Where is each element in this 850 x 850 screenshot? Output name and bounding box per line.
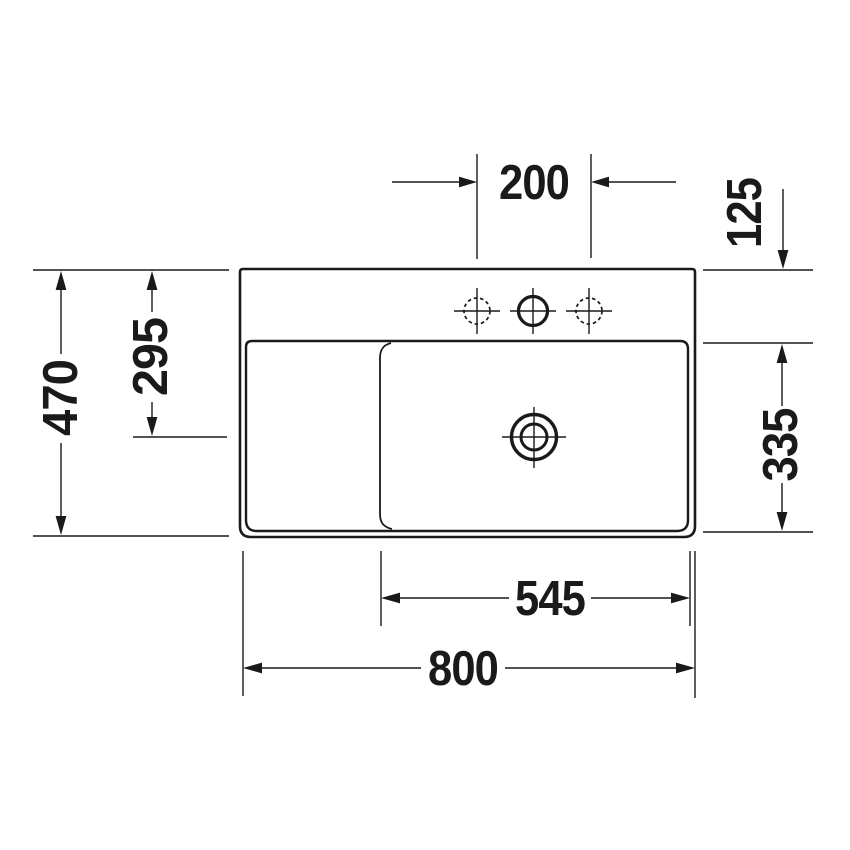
dimension-overall-width: 800 — [243, 551, 695, 698]
arrowhead-left — [381, 593, 400, 604]
arrowhead-up — [56, 271, 67, 290]
arrowhead-left — [591, 177, 609, 188]
arrowhead-right — [671, 593, 690, 604]
dimension-label-125: 125 — [718, 178, 772, 248]
dimension-faucet-setback: 125 — [703, 178, 813, 270]
arrowhead-right — [676, 663, 695, 674]
arrowhead-up — [147, 271, 158, 290]
dimension-basin-depth: 335 — [703, 343, 813, 532]
basin-rim-outline — [246, 341, 688, 531]
dimension-overall-depth: 470 — [33, 270, 229, 536]
arrowhead-down — [777, 512, 788, 531]
faucet-holes — [454, 288, 612, 334]
dimension-drain-setback: 295 — [124, 271, 227, 437]
dimension-label-335: 335 — [754, 409, 808, 482]
faucet-hole-right — [566, 288, 612, 334]
arrowhead-down — [778, 250, 789, 269]
dimension-label-800: 800 — [428, 642, 498, 696]
dimension-faucet-spacing: 200 — [392, 154, 676, 259]
faucet-hole-left — [454, 288, 500, 334]
arrowhead-right — [459, 177, 477, 188]
arrowhead-up — [777, 344, 788, 363]
basin-divider-curve — [380, 343, 392, 529]
drawing-canvas: 200 125 470 295 — [0, 0, 850, 850]
dimension-basin-width: 545 — [381, 551, 690, 626]
arrowhead-left — [243, 663, 262, 674]
sink-body — [240, 269, 695, 537]
sink-outer-outline — [240, 269, 695, 537]
dimension-label-545: 545 — [515, 572, 585, 626]
arrowhead-down — [147, 417, 158, 436]
dimension-label-470: 470 — [34, 360, 88, 436]
arrowhead-down — [56, 516, 67, 535]
faucet-hole-center — [510, 288, 556, 334]
technical-drawing: 200 125 470 295 — [0, 0, 850, 850]
drain-symbol — [502, 407, 566, 468]
dimension-label-200: 200 — [499, 156, 569, 210]
dimension-label-295: 295 — [124, 318, 178, 396]
